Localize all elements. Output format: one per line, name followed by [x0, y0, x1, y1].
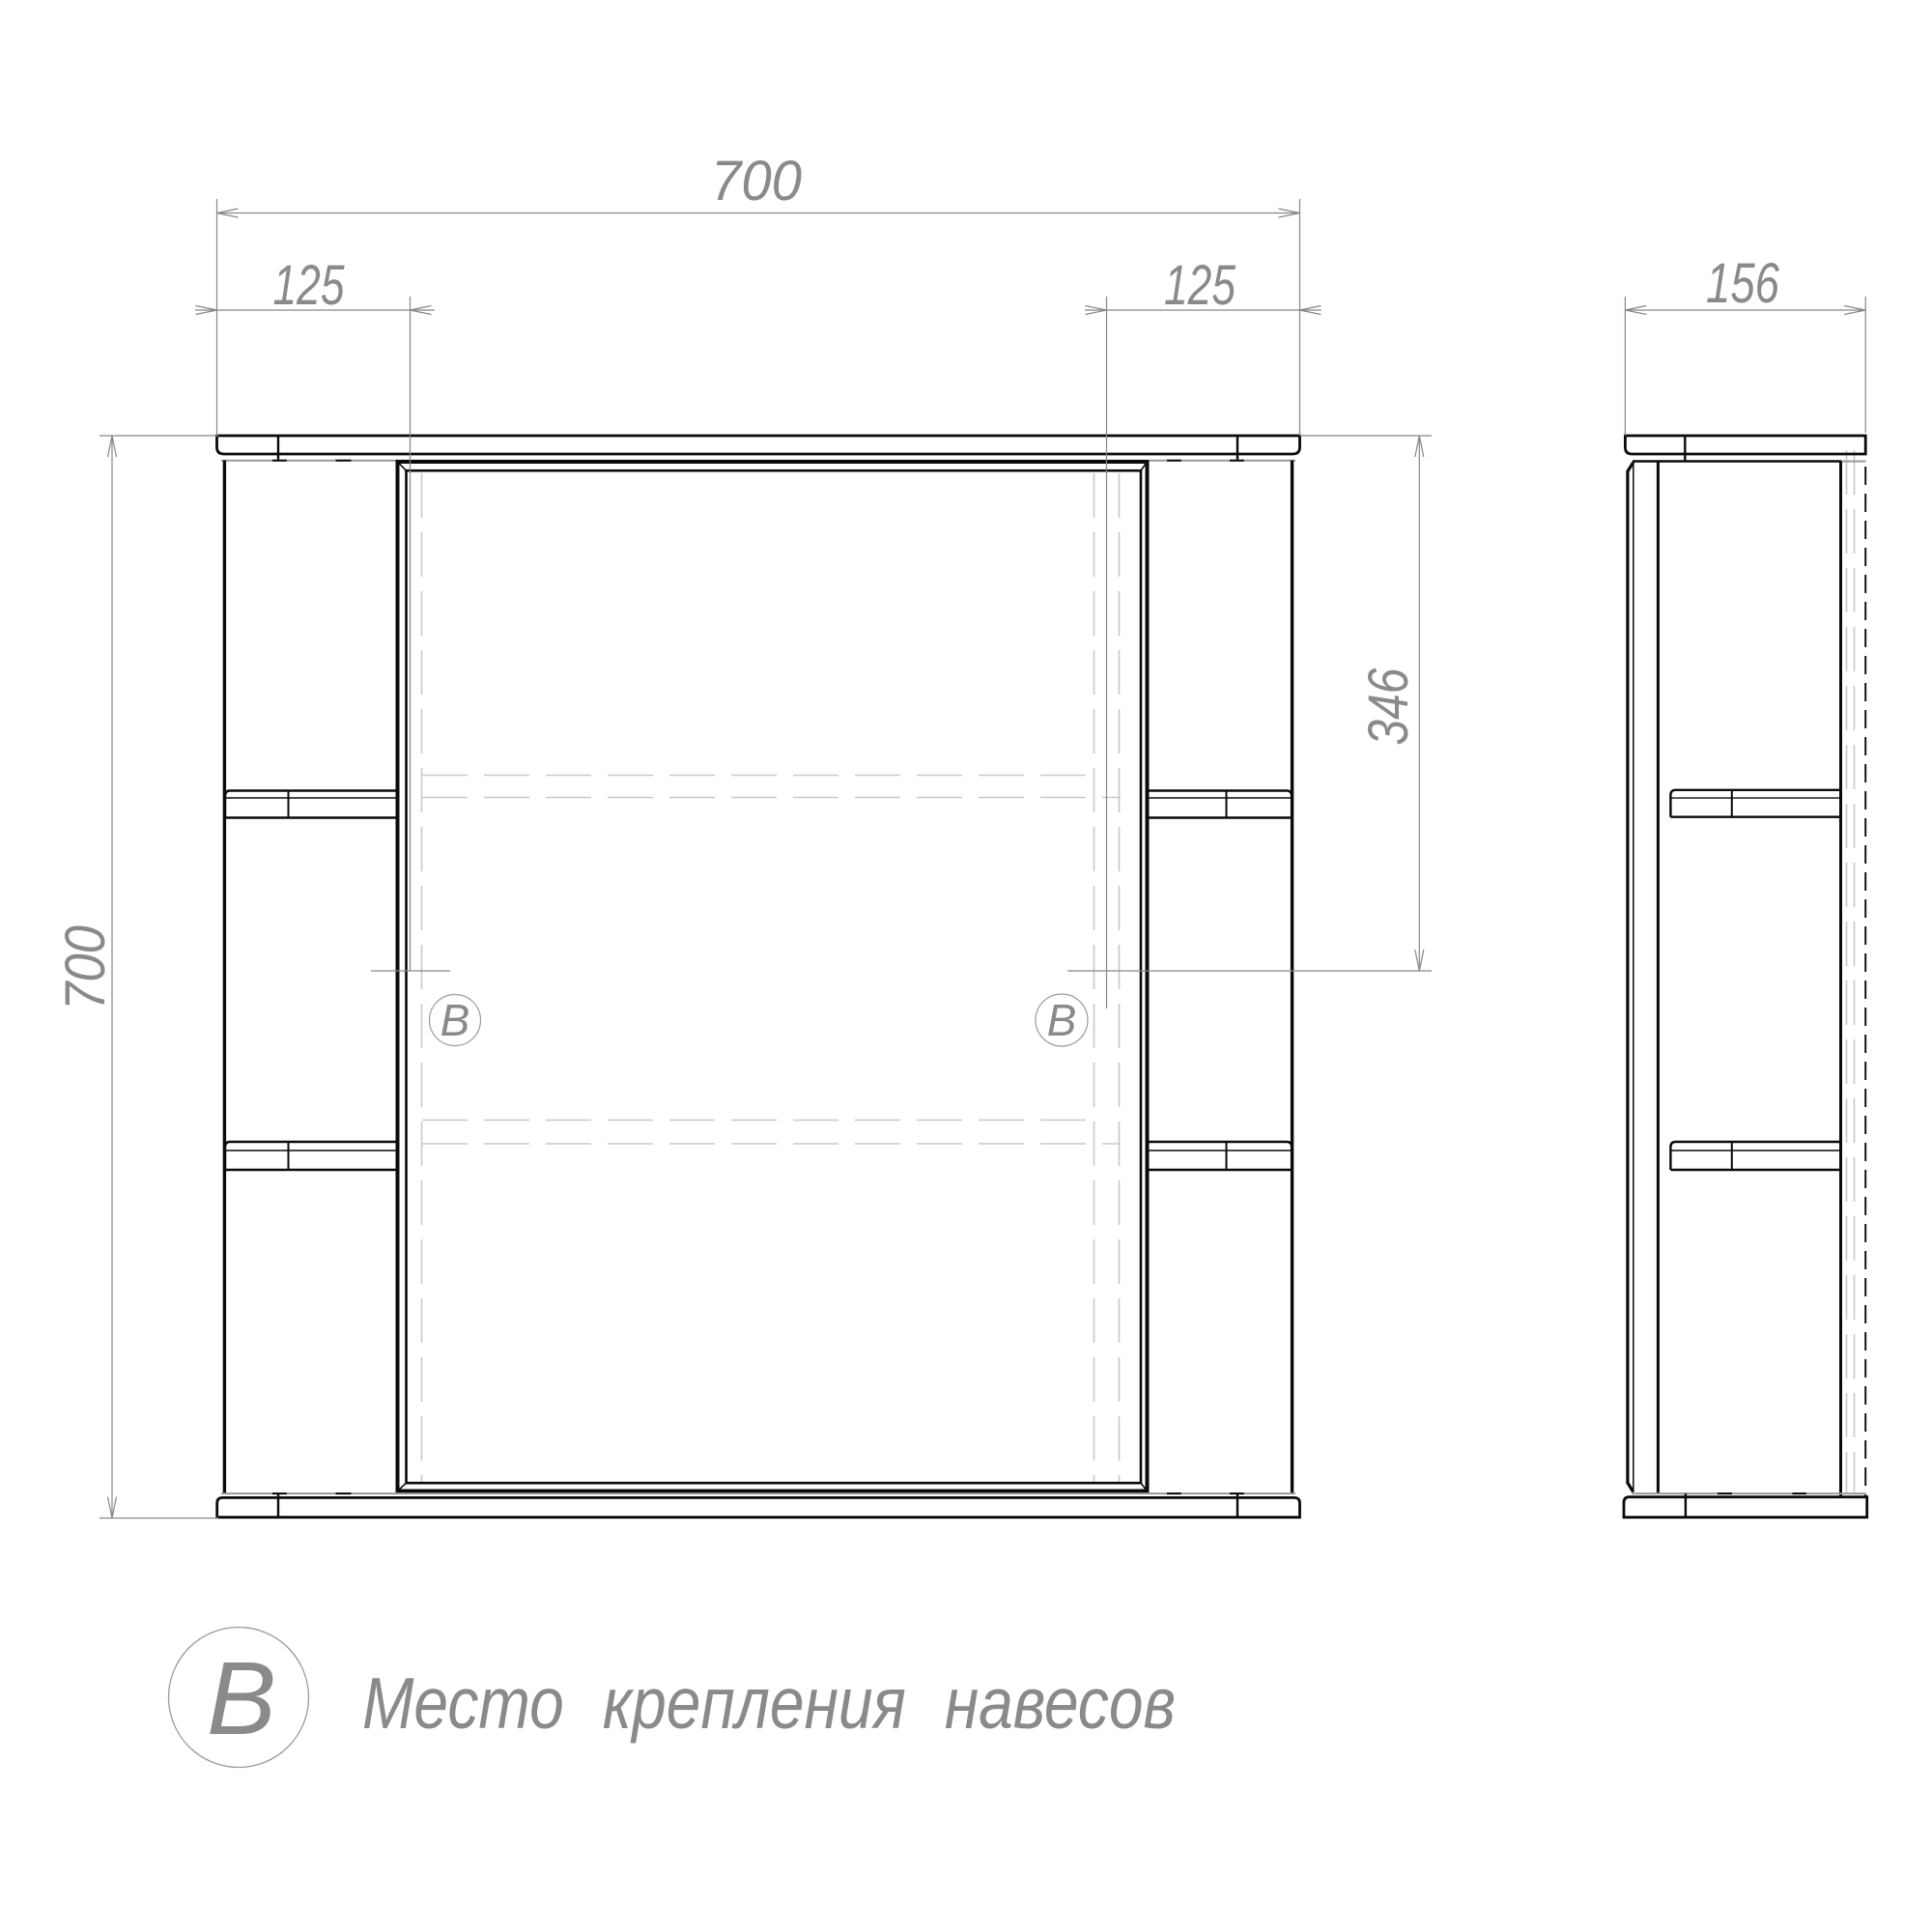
- svg-text:156: 156: [1706, 252, 1780, 315]
- svg-text:В: В: [207, 1639, 276, 1756]
- svg-text:В: В: [1047, 995, 1077, 1045]
- svg-text:125: 125: [273, 254, 346, 317]
- svg-text:125: 125: [1164, 254, 1236, 317]
- svg-text:Место крепления навесов: Место крепления навесов: [362, 1662, 1176, 1744]
- svg-text:346: 346: [1357, 668, 1420, 746]
- svg-text:700: 700: [54, 925, 117, 1010]
- svg-text:700: 700: [711, 150, 802, 213]
- svg-text:В: В: [440, 995, 470, 1045]
